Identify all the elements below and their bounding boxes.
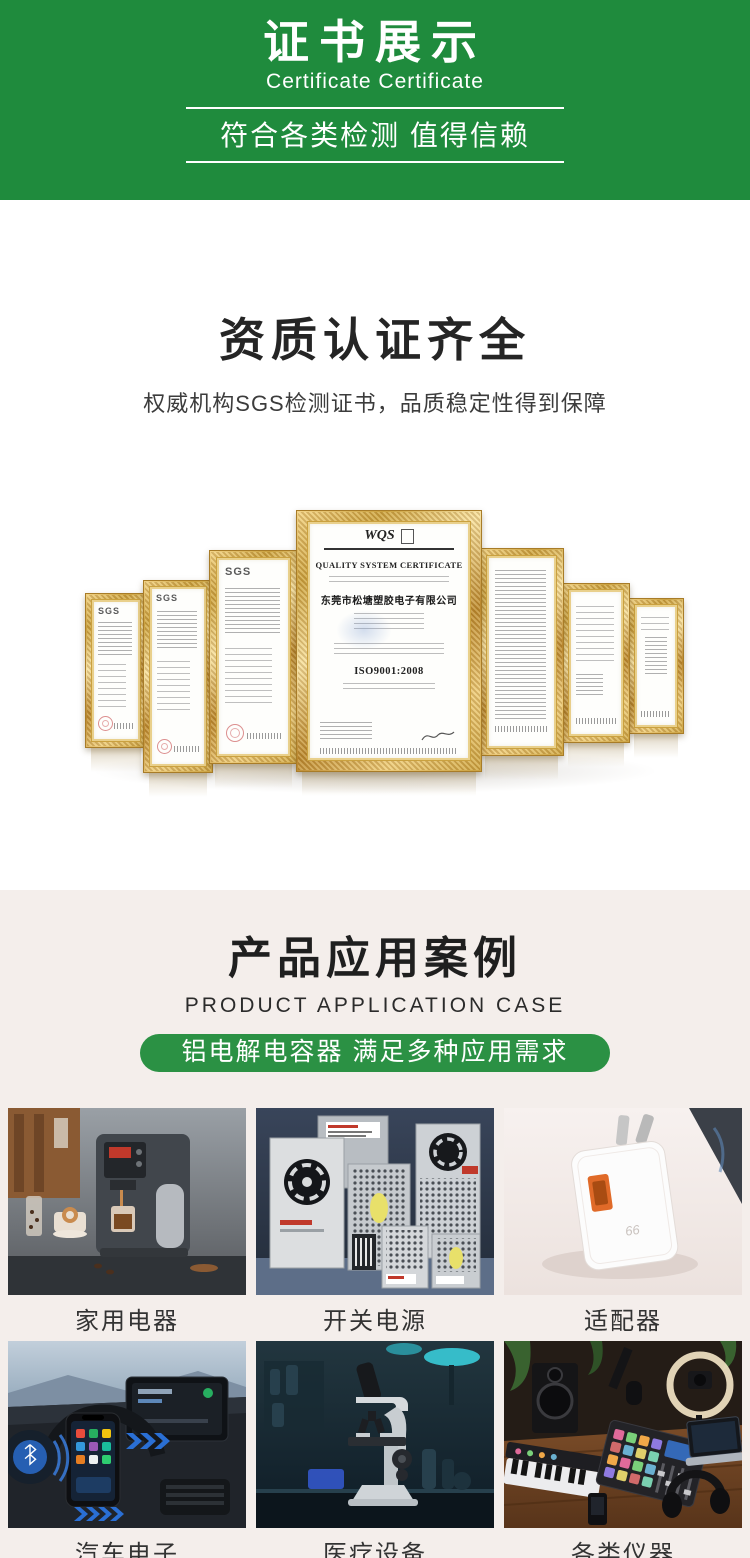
certificate-banner: 证书展示 Certificate Certificate 符合各类检测 值得信赖: [0, 0, 750, 200]
application-card-power-supply: 开关电源: [256, 1108, 494, 1341]
applications-subheading: PRODUCT APPLICATION CASE: [0, 994, 750, 1018]
applications-grid: 家用电器: [0, 1108, 750, 1558]
svg-text:66: 66: [624, 1222, 641, 1239]
application-label: 汽车电子: [8, 1528, 246, 1558]
application-card-instruments: 各类仪器: [504, 1341, 742, 1558]
audio-equipment-icon: [504, 1341, 742, 1528]
certificate-text-lines: [225, 588, 280, 636]
certificate-paper: [568, 589, 624, 737]
certificate-paper-center: WQS QUALITY SYSTEM CERTIFICATE 东莞市松塘塑胶电子…: [307, 521, 471, 761]
certificate-text-lines: [343, 683, 435, 689]
red-seal-icon: [226, 724, 244, 742]
certificate-footer-lines: [114, 723, 134, 729]
certificate-paper: SGS: [91, 599, 141, 742]
certificate-text-lines: [495, 570, 546, 720]
certificate-paper: SGS: [149, 586, 207, 767]
certificate-frame-right-3: [628, 598, 684, 734]
certificate-paper: [634, 604, 678, 728]
certificate-frame-right-1: [479, 548, 564, 756]
coffee-machine-icon: [8, 1108, 246, 1295]
certificate-formula-table: [645, 637, 667, 677]
sgs-logo: SGS: [225, 566, 251, 578]
certificate-footer-lines: [174, 746, 199, 752]
certificates-collage: SGS SGS SGS: [0, 480, 750, 820]
certificate-text-lines: [329, 576, 449, 582]
certificate-text-lines: [576, 674, 603, 698]
certificate-text-lines: [641, 617, 669, 631]
certificate-footer-lines: [320, 748, 458, 754]
adapter-image: 66: [504, 1108, 742, 1295]
application-label: 适配器: [504, 1295, 742, 1341]
certificate-text-lines: [320, 722, 372, 742]
application-label: 家用电器: [8, 1295, 246, 1341]
applications-section: 产品应用案例 PRODUCT APPLICATION CASE 铝电解电容器 满…: [0, 890, 750, 1558]
certificate-company-name: 东莞市松塘塑胶电子有限公司: [308, 592, 470, 607]
certificate-footer-lines: [641, 711, 671, 717]
certificate-rule: [324, 548, 454, 550]
banner-subtitle: Certificate Certificate: [0, 70, 750, 94]
wqs-logo-row: WQS: [308, 528, 470, 544]
certificate-text-lines: [576, 606, 614, 666]
certificate-frame-left-3: SGS: [85, 593, 147, 748]
certificate-text-lines: [157, 611, 197, 651]
application-card-home-appliances: 家用电器: [8, 1108, 246, 1341]
usb-charger-icon: 66: [504, 1108, 742, 1295]
certificate-footer-lines: [495, 726, 548, 732]
certificate-frame-left-1: SGS: [209, 550, 298, 764]
certificate-title: QUALITY SYSTEM CERTIFICATE: [308, 560, 470, 570]
application-card-medical: 医疗设备: [256, 1341, 494, 1558]
product-detail-page: 证书展示 Certificate Certificate 符合各类检测 值得信赖…: [0, 0, 750, 1558]
crest-icon: [401, 529, 414, 544]
certificate-text-lines: [157, 661, 190, 713]
red-seal-icon: [98, 716, 113, 731]
application-card-adapter: 66 适配器: [504, 1108, 742, 1341]
automotive-image: [8, 1341, 246, 1528]
certificate-frame-right-2: [562, 583, 630, 743]
application-label: 开关电源: [256, 1295, 494, 1341]
watermark: [336, 610, 392, 650]
certificate-footer-lines: [576, 718, 616, 724]
certificate-paper: [486, 555, 557, 749]
certificate-text-lines: [98, 622, 132, 656]
applications-badge: 铝电解电容器 满足多种应用需求: [140, 1034, 611, 1072]
application-label: 各类仪器: [504, 1528, 742, 1558]
qualification-description: 权威机构SGS检测证书，品质稳定性得到保障: [0, 386, 750, 418]
instruments-image: [504, 1341, 742, 1528]
medical-image: [256, 1341, 494, 1528]
home-appliances-image: [8, 1108, 246, 1295]
application-label: 医疗设备: [256, 1528, 494, 1558]
certificate-footer-lines: [247, 733, 282, 739]
application-card-automotive: 汽车电子: [8, 1341, 246, 1558]
microscope-icon: [256, 1341, 494, 1528]
switching-power-supply-icon: [256, 1108, 494, 1295]
banner-tagline: 符合各类检测 值得信赖: [186, 107, 564, 163]
certificate-text-lines: [225, 648, 272, 708]
wqs-logo: WQS: [364, 528, 394, 544]
signature-icon: [420, 728, 456, 744]
certificate-frame-center: WQS QUALITY SYSTEM CERTIFICATE 东莞市松塘塑胶电子…: [296, 510, 482, 772]
sgs-logo: SGS: [98, 606, 120, 616]
power-supply-image: [256, 1108, 494, 1295]
sgs-logo: SGS: [156, 593, 178, 603]
qualification-heading: 资质认证齐全: [0, 200, 750, 370]
red-seal-icon: [157, 739, 172, 754]
applications-heading: 产品应用案例: [0, 890, 750, 986]
car-dashboard-icon: [8, 1341, 246, 1528]
certificate-frame-left-2: SGS: [143, 580, 213, 773]
certificate-paper: SGS: [216, 557, 291, 757]
certificate-standard: ISO9001:2008: [308, 666, 470, 677]
certificate-text-lines: [98, 664, 126, 708]
qualification-section: 资质认证齐全 权威机构SGS检测证书，品质稳定性得到保障 SGS SGS: [0, 200, 750, 890]
banner-title: 证书展示: [0, 0, 750, 66]
